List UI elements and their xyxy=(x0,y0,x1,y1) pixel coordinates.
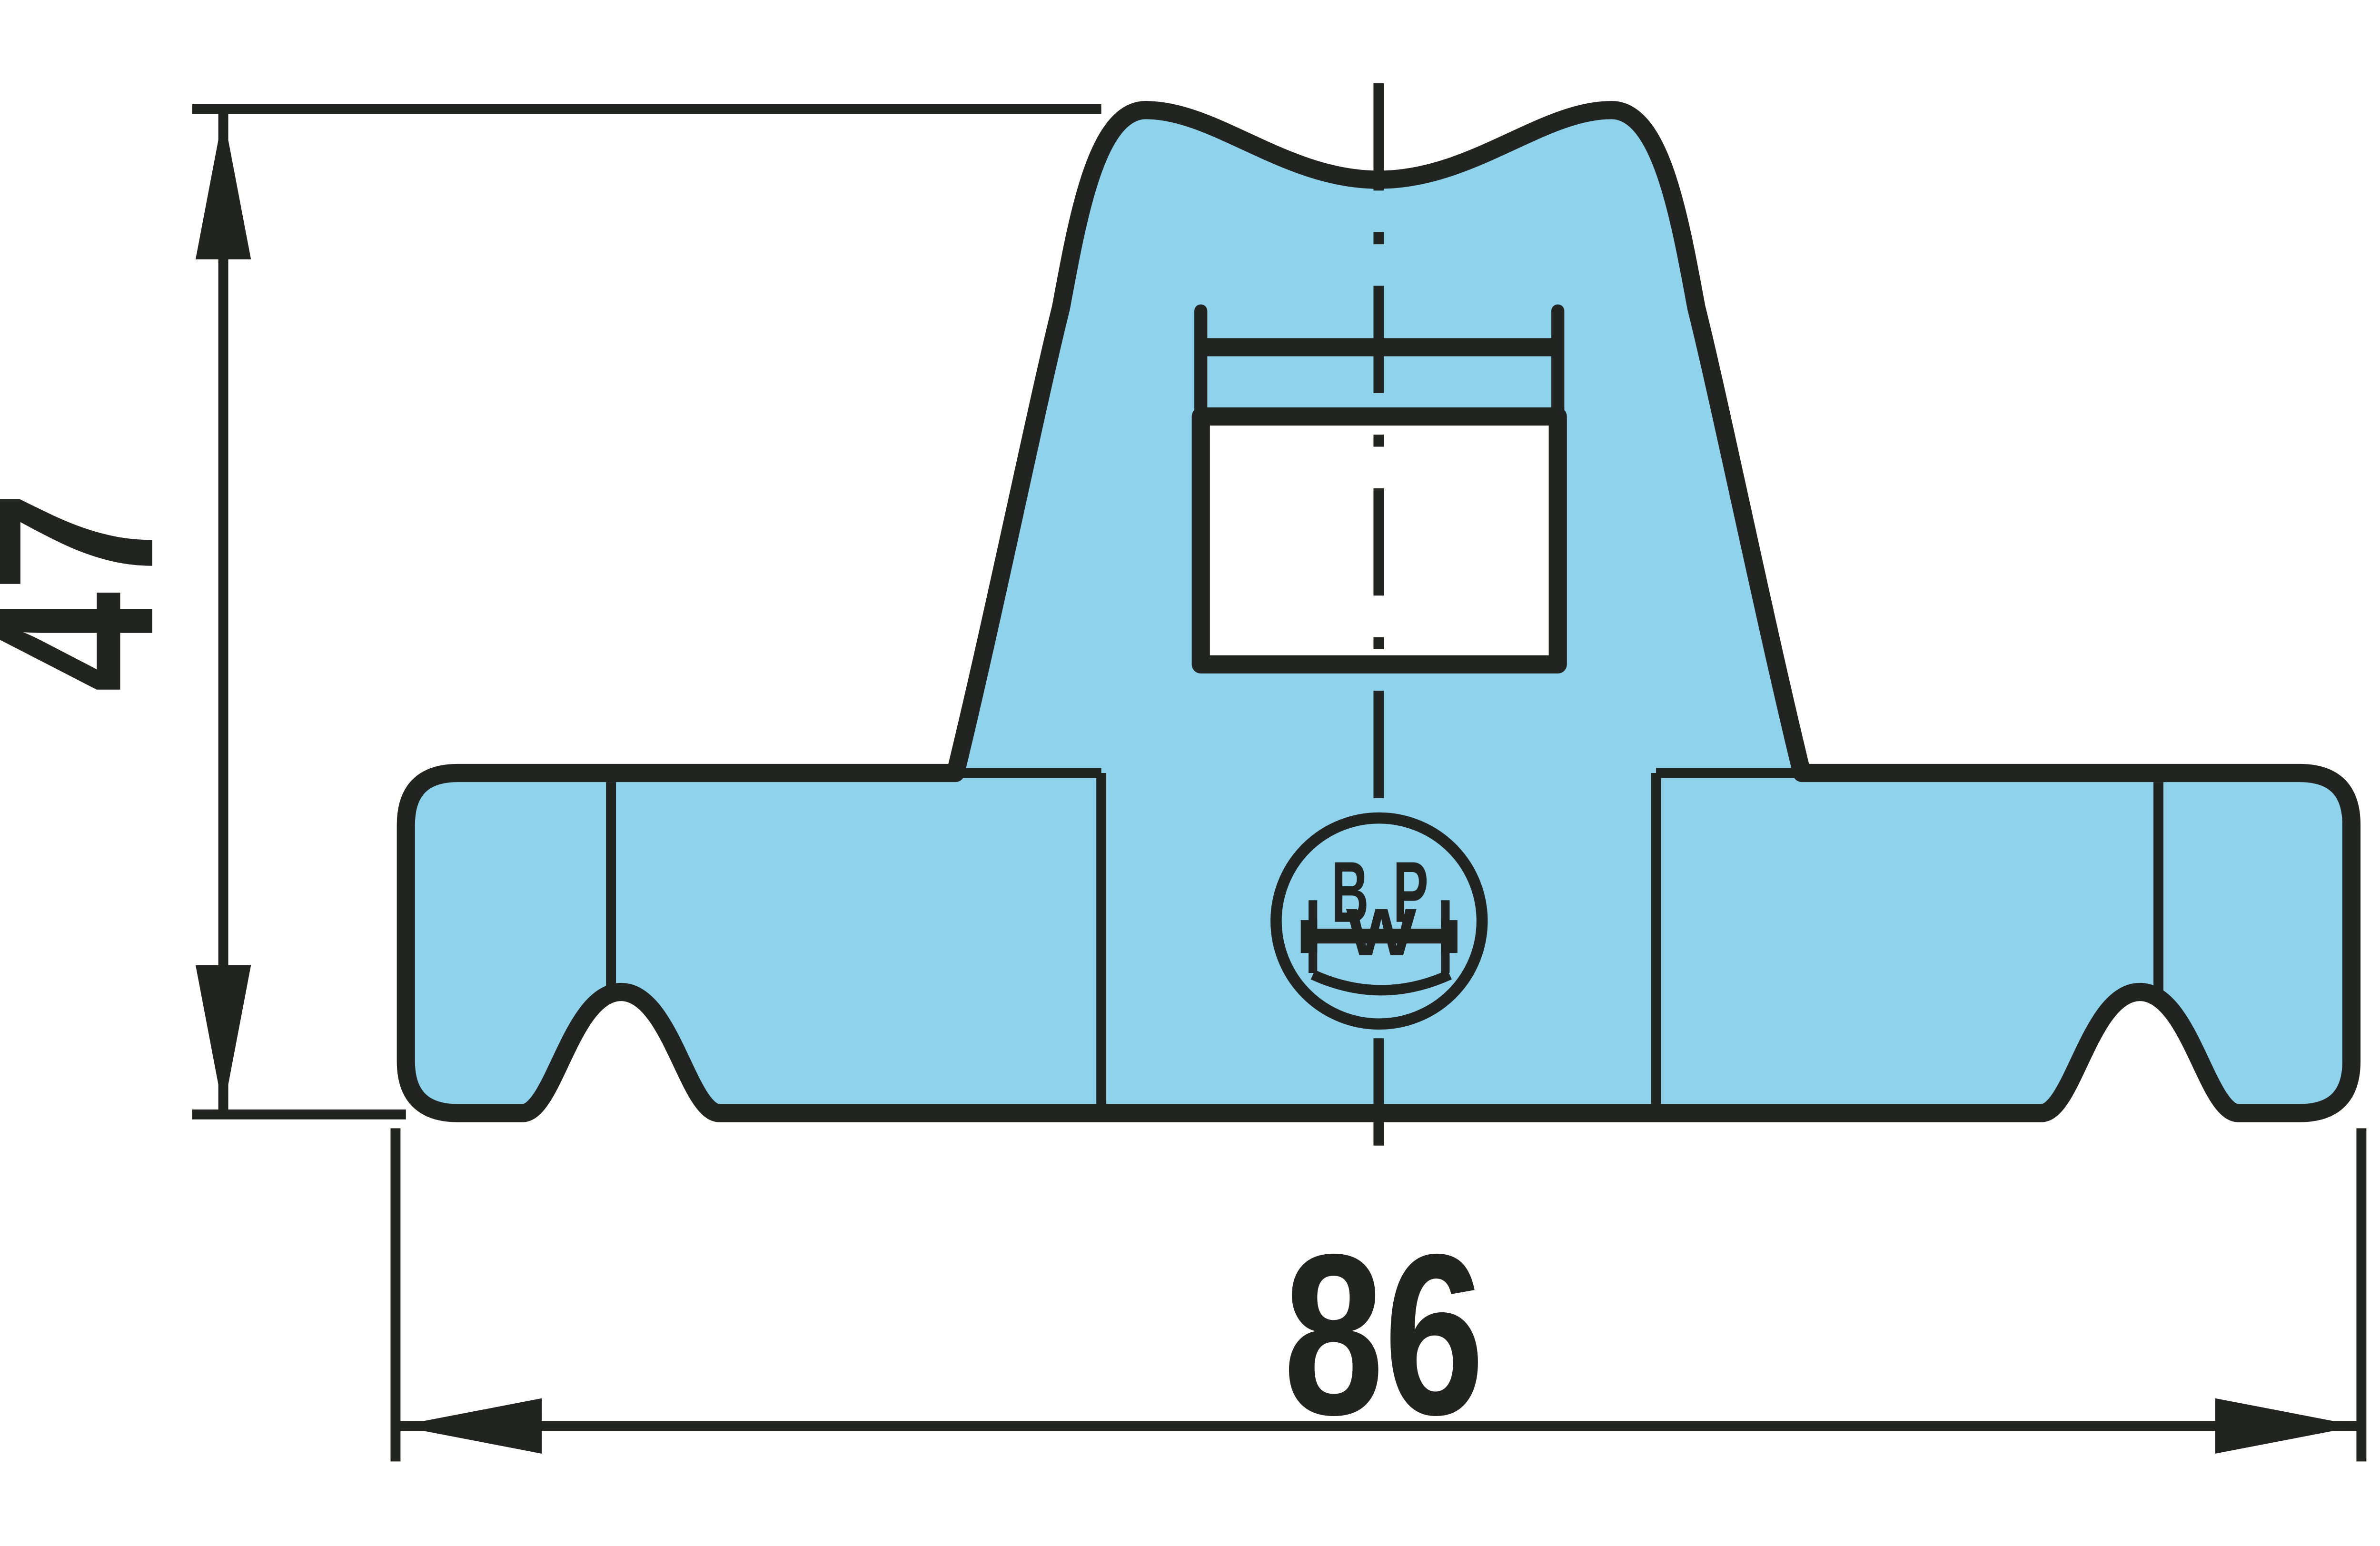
bpw-axle-hub-right xyxy=(1441,920,1458,953)
technical-drawing-page: B P W 47 xyxy=(0,0,2380,1546)
arrowhead-left-icon xyxy=(398,1398,542,1454)
logo-letter-w: W xyxy=(1346,894,1417,970)
dimension-width-86: 86 xyxy=(396,1128,2361,1463)
bpw-axle-hub-left xyxy=(1301,920,1318,953)
arrowhead-up-icon xyxy=(196,114,251,259)
drawing-canvas: B P W 47 xyxy=(0,0,2380,1546)
arrowhead-down-icon xyxy=(196,965,251,1110)
arrowhead-right-icon xyxy=(2215,1398,2359,1454)
dim-value-width: 86 xyxy=(1283,1207,1485,1463)
linework: B P W 47 xyxy=(0,83,2361,1463)
dim-value-height: 47 xyxy=(0,491,201,693)
